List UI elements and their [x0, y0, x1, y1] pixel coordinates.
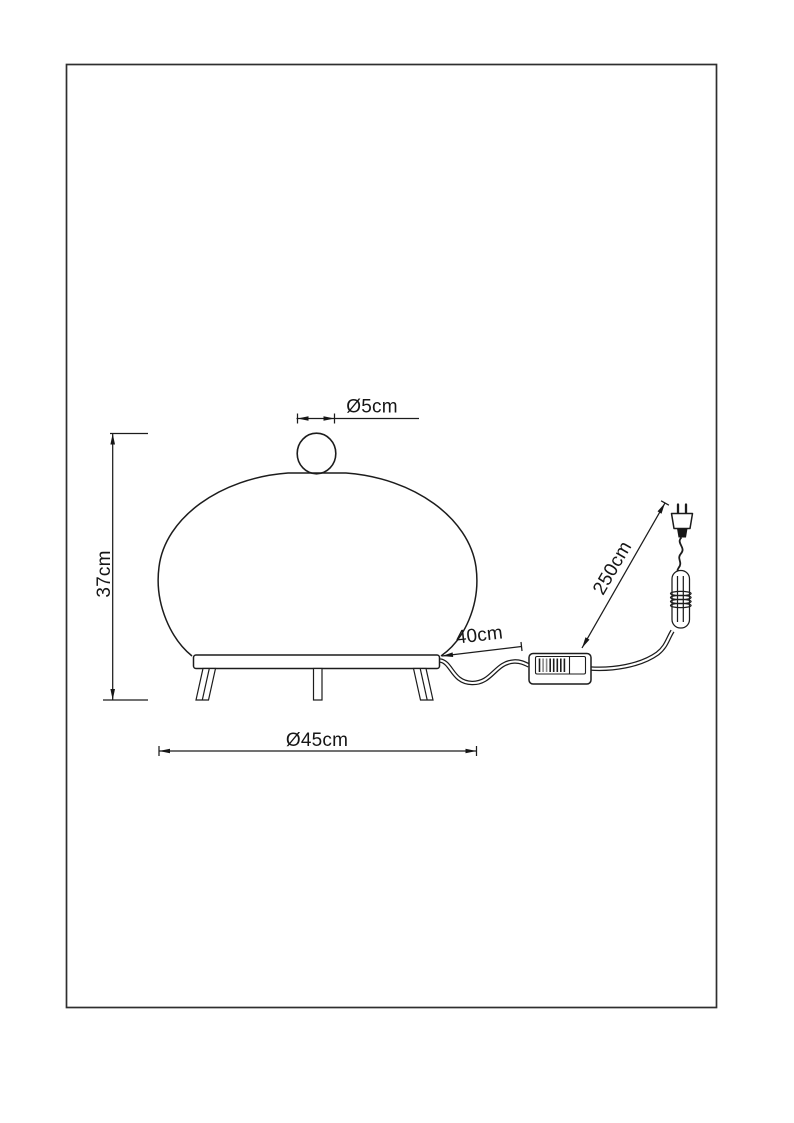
- plug-boot: [677, 529, 688, 538]
- power-cord-segment-1: [440, 661, 529, 684]
- plug-cord-squiggle: [678, 538, 683, 572]
- technical-drawing: Ø5cm 37cm Ø45cm 40cm: [0, 0, 794, 1123]
- dim5-arrow-right: [324, 416, 335, 420]
- dim45-arrow-right: [466, 749, 477, 753]
- dim40-tick-right: [521, 642, 522, 651]
- dim40-line: [442, 647, 522, 657]
- euro-plug: [672, 505, 693, 538]
- middle-leg: [314, 669, 323, 701]
- dim37-arrow-down: [110, 689, 115, 700]
- dim250-line: [582, 503, 665, 648]
- page-border-frame: [67, 65, 717, 1008]
- dim250-arrow-bottom: [582, 637, 590, 648]
- dim37-arrow-up: [110, 434, 115, 445]
- plug-body: [672, 514, 693, 529]
- finial-knob: [297, 433, 336, 474]
- cord1-core: [440, 661, 529, 684]
- dim40-label: 40cm: [455, 622, 504, 648]
- dim250-label: 250cm: [589, 538, 636, 599]
- lamp-shade-outline: [158, 473, 477, 656]
- dim5-arrow-left: [298, 416, 309, 420]
- dimension-lamp-height: 37cm: [94, 434, 148, 701]
- dimension-knob-diameter: Ø5cm: [297, 397, 420, 424]
- inline-switch: [529, 654, 591, 685]
- dimension-cord-total: 250cm: [582, 501, 669, 648]
- legs: [196, 669, 433, 701]
- base-plate: [194, 655, 440, 669]
- drawing-sheet: Ø5cm 37cm Ø45cm 40cm: [0, 0, 794, 1123]
- power-cord-segment-2: [590, 631, 673, 669]
- dim5-label: Ø5cm: [346, 397, 397, 418]
- cable-coil: [671, 571, 692, 629]
- dim45-arrow-left: [159, 749, 170, 753]
- dim37-label: 37cm: [94, 550, 115, 597]
- dimension-cord-to-switch: 40cm: [442, 622, 522, 657]
- dim45-label: Ø45cm: [286, 730, 348, 751]
- dimension-shade-diameter: Ø45cm: [159, 730, 477, 756]
- dim250-arrow-top: [658, 503, 666, 514]
